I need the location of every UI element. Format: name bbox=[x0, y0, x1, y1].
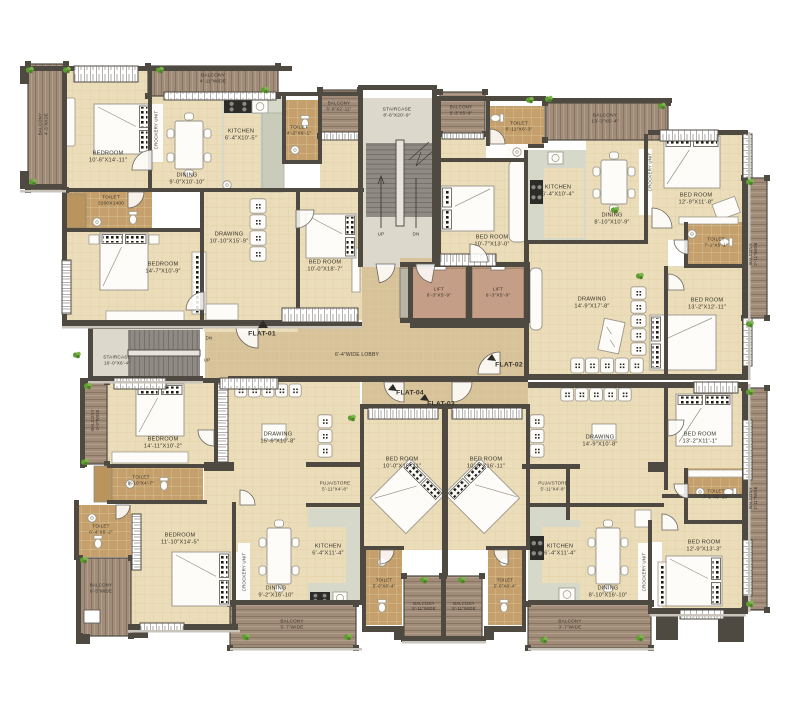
svg-text:10′-6″X14′-11″: 10′-6″X14′-11″ bbox=[89, 157, 127, 163]
svg-text:8′-10″X10′-9″: 8′-10″X10′-9″ bbox=[594, 219, 629, 225]
svg-text:15′-6″X10′-8″: 15′-6″X10′-8″ bbox=[260, 438, 295, 444]
svg-text:6′-3″X5′-9″: 6′-3″X5′-9″ bbox=[486, 293, 511, 299]
svg-text:13′-2″X12′-11″: 13′-2″X12′-11″ bbox=[688, 304, 726, 310]
svg-text:CROCKERY UNIT: CROCKERY UNIT bbox=[642, 552, 647, 591]
svg-text:3200X1400: 3200X1400 bbox=[98, 201, 124, 207]
svg-text:FLAT-04: FLAT-04 bbox=[396, 389, 424, 396]
svg-text:DRAWING: DRAWING bbox=[264, 432, 293, 438]
svg-text:6′-4″X11′-4″: 6′-4″X11′-4″ bbox=[544, 550, 576, 556]
svg-text:6′-11″X6′-3″: 6′-11″X6′-3″ bbox=[506, 127, 533, 133]
svg-text:TOILET: TOILET bbox=[376, 578, 393, 583]
svg-text:CROCKERY UNIT: CROCKERY UNIT bbox=[154, 110, 159, 149]
svg-text:BED ROOM: BED ROOM bbox=[386, 457, 419, 463]
svg-text:BALCONY: BALCONY bbox=[748, 243, 753, 264]
svg-text:6′-5″WIDE: 6′-5″WIDE bbox=[90, 588, 112, 593]
svg-text:14′-11″X10′-2″: 14′-11″X10′-2″ bbox=[144, 443, 182, 449]
svg-text:7′-1″X5′-1″: 7′-1″X5′-1″ bbox=[704, 243, 728, 248]
svg-text:5′-11″WIDE: 5′-11″WIDE bbox=[452, 606, 475, 611]
svg-text:BED ROOM: BED ROOM bbox=[680, 193, 713, 199]
svg-text:6′-4″X10′-4″: 6′-4″X10′-4″ bbox=[542, 191, 574, 197]
svg-text:BEDROOM: BEDROOM bbox=[93, 151, 124, 157]
svg-text:14′-9″X17′-8″: 14′-9″X17′-8″ bbox=[574, 303, 609, 309]
svg-text:BED ROOM: BED ROOM bbox=[691, 298, 724, 304]
svg-text:FLAT-03: FLAT-03 bbox=[427, 400, 455, 407]
svg-text:2′-11″WIDE: 2′-11″WIDE bbox=[753, 486, 758, 509]
svg-text:BALCONY: BALCONY bbox=[593, 113, 618, 119]
svg-text:PUJA/STORE: PUJA/STORE bbox=[320, 481, 351, 486]
svg-text:BALCONY: BALCONY bbox=[413, 601, 434, 606]
svg-text:10′-10″X15′-9″: 10′-10″X15′-9″ bbox=[210, 238, 249, 244]
svg-text:11′-10″X14′-5″: 11′-10″X14′-5″ bbox=[161, 539, 199, 545]
svg-text:BEDROOM: BEDROOM bbox=[148, 437, 179, 443]
svg-text:10′-0″X16′-11″: 10′-0″X16′-11″ bbox=[467, 463, 505, 469]
svg-text:BALCONY: BALCONY bbox=[450, 105, 472, 110]
svg-text:BALCONY: BALCONY bbox=[90, 583, 112, 588]
svg-text:2′-11″WIDE: 2′-11″WIDE bbox=[753, 242, 758, 265]
svg-text:FLAT-01: FLAT-01 bbox=[248, 330, 276, 337]
svg-text:3′-7″WIDE: 3′-7″WIDE bbox=[559, 625, 582, 630]
svg-text:UP: UP bbox=[378, 232, 385, 237]
svg-text:DN: DN bbox=[412, 232, 419, 237]
svg-text:6′-4″X10′-5″: 6′-4″X10′-5″ bbox=[225, 135, 257, 141]
svg-text:KITCHEN: KITCHEN bbox=[547, 544, 573, 550]
svg-text:6′-0″X2′-11″: 6′-0″X2′-11″ bbox=[327, 106, 352, 111]
svg-text:5′-0″X8′-4″: 5′-0″X8′-4″ bbox=[494, 583, 517, 588]
svg-text:STAIRCASE: STAIRCASE bbox=[103, 355, 131, 360]
svg-text:BALCONY: BALCONY bbox=[280, 619, 303, 624]
svg-text:KITCHEN: KITCHEN bbox=[228, 129, 254, 135]
svg-text:DINING: DINING bbox=[597, 586, 618, 592]
svg-text:6′-4″X11′-4″: 6′-4″X11′-4″ bbox=[312, 550, 344, 556]
svg-text:10′-7″X13′-0″: 10′-7″X13′-0″ bbox=[474, 241, 509, 247]
svg-text:7′-1″X5′-10″: 7′-1″X5′-10″ bbox=[703, 495, 729, 500]
svg-text:DRAWING: DRAWING bbox=[586, 435, 615, 441]
svg-text:4′-2″X6′-1″: 4′-2″X6′-1″ bbox=[287, 131, 312, 137]
svg-text:BED ROOM: BED ROOM bbox=[684, 432, 717, 438]
svg-text:DN: DN bbox=[206, 336, 213, 341]
svg-text:10′-0″X16′-11″: 10′-0″X16′-11″ bbox=[383, 463, 421, 469]
svg-text:UP: UP bbox=[204, 358, 211, 363]
svg-text:BALCONY: BALCONY bbox=[453, 601, 474, 606]
svg-text:TOILET: TOILET bbox=[510, 121, 528, 127]
svg-text:BALCONY: BALCONY bbox=[201, 73, 226, 79]
svg-text:9′-10″X4′-7″: 9′-10″X4′-7″ bbox=[128, 481, 154, 486]
svg-text:LIFT: LIFT bbox=[493, 287, 504, 293]
svg-text:14′-9″X10′-8″: 14′-9″X10′-8″ bbox=[582, 441, 617, 447]
svg-text:9′-0″X10′-10″: 9′-0″X10′-10″ bbox=[169, 179, 204, 185]
svg-text:BED ROOM: BED ROOM bbox=[309, 260, 342, 266]
svg-text:12′-9″X11′-8″: 12′-9″X11′-8″ bbox=[679, 199, 714, 205]
svg-text:8′-6″X20′-9″: 8′-6″X20′-9″ bbox=[383, 113, 410, 119]
svg-text:TOILET: TOILET bbox=[497, 578, 514, 583]
svg-text:5′-3″X5′-9″: 5′-3″X5′-9″ bbox=[450, 110, 473, 115]
svg-text:5′-11″WIDE: 5′-11″WIDE bbox=[412, 606, 435, 611]
svg-text:STAIRCASE: STAIRCASE bbox=[383, 107, 412, 113]
svg-text:4′-0″WIDE: 4′-0″WIDE bbox=[95, 409, 100, 430]
svg-text:BALCONY: BALCONY bbox=[90, 409, 95, 430]
svg-text:LIFT: LIFT bbox=[434, 287, 445, 293]
svg-text:BED ROOM: BED ROOM bbox=[476, 235, 509, 241]
svg-text:5′-0″X8′-4″: 5′-0″X8′-4″ bbox=[373, 583, 396, 588]
svg-text:BEDROOM: BEDROOM bbox=[165, 533, 196, 539]
svg-text:12′-9″X13′-3″: 12′-9″X13′-3″ bbox=[686, 546, 721, 552]
svg-text:BALCONY: BALCONY bbox=[748, 487, 753, 508]
svg-text:KITCHEN: KITCHEN bbox=[545, 185, 571, 191]
svg-text:TOILET: TOILET bbox=[92, 524, 109, 529]
svg-text:KITCHEN: KITCHEN bbox=[315, 544, 341, 550]
svg-text:TOILET: TOILET bbox=[102, 195, 120, 201]
svg-text:DINING: DINING bbox=[176, 173, 197, 179]
svg-text:BEDROOM: BEDROOM bbox=[148, 262, 179, 268]
svg-text:10′-0″X18′-7″: 10′-0″X18′-7″ bbox=[307, 266, 342, 272]
svg-text:DRAWING: DRAWING bbox=[215, 232, 244, 238]
svg-text:TOILET: TOILET bbox=[707, 237, 724, 242]
svg-text:TOILET: TOILET bbox=[707, 489, 724, 494]
svg-text:5′-11″X4′-8″: 5′-11″X4′-8″ bbox=[322, 487, 348, 492]
svg-text:8′-10″X16′-10″: 8′-10″X16′-10″ bbox=[589, 592, 628, 598]
svg-text:4′-5″WIDE: 4′-5″WIDE bbox=[43, 113, 48, 135]
svg-text:6′-3″X5′-9″: 6′-3″X5′-9″ bbox=[427, 293, 452, 299]
svg-text:4′-11″WIDE: 4′-11″WIDE bbox=[200, 79, 226, 85]
svg-text:CROCKERY UNIT: CROCKERY UNIT bbox=[648, 152, 653, 191]
svg-text:6′-4″WIDE LOBBY: 6′-4″WIDE LOBBY bbox=[335, 352, 380, 358]
svg-text:BALCONY: BALCONY bbox=[328, 101, 350, 106]
svg-text:DINING: DINING bbox=[601, 213, 622, 219]
svg-text:BALCONY: BALCONY bbox=[558, 619, 581, 624]
svg-text:PUJA/STORE: PUJA/STORE bbox=[538, 481, 568, 486]
svg-text:TOILET: TOILET bbox=[290, 125, 308, 131]
svg-text:13′-2″X11′-1″: 13′-2″X11′-1″ bbox=[683, 438, 718, 444]
svg-text:14′-7″X10′-9″: 14′-7″X10′-9″ bbox=[145, 268, 180, 274]
svg-text:5′-11″X4′-8″: 5′-11″X4′-8″ bbox=[541, 486, 566, 491]
svg-text:BED ROOM: BED ROOM bbox=[688, 540, 721, 546]
svg-text:16′-0″X6′-4″: 16′-0″X6′-4″ bbox=[104, 361, 130, 366]
svg-text:5′-7″WIDE: 5′-7″WIDE bbox=[281, 625, 304, 630]
svg-text:13′-3″X5′-4″: 13′-3″X5′-4″ bbox=[591, 119, 618, 125]
svg-text:DINING: DINING bbox=[265, 586, 286, 592]
svg-text:6′-4″X6′-2″: 6′-4″X6′-2″ bbox=[89, 530, 113, 535]
svg-text:BALCONY: BALCONY bbox=[38, 113, 43, 135]
svg-text:CROCKERY UNIT: CROCKERY UNIT bbox=[242, 552, 247, 591]
svg-text:TOILET: TOILET bbox=[132, 475, 149, 480]
svg-text:DRAWING: DRAWING bbox=[578, 297, 607, 303]
svg-text:9′-2″X16′-10″: 9′-2″X16′-10″ bbox=[258, 592, 293, 598]
svg-text:FLAT-02: FLAT-02 bbox=[495, 361, 523, 368]
svg-text:BED ROOM: BED ROOM bbox=[470, 457, 503, 463]
